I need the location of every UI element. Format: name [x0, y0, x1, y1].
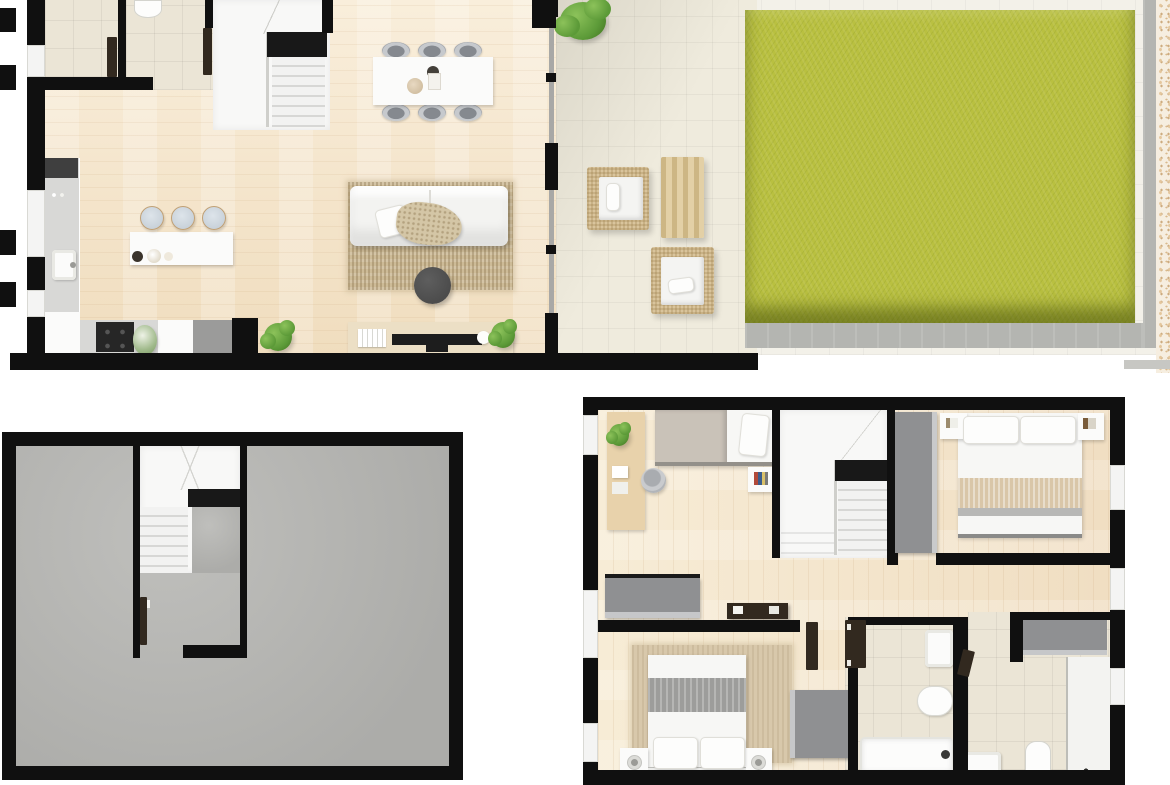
bar-stool-1 [140, 206, 164, 230]
first-right-window-3 [1110, 668, 1125, 705]
glass-wall-seg-mid [545, 143, 558, 190]
first-stair-wall-left [772, 410, 780, 558]
tv [392, 334, 482, 345]
dining-top-wall-stub [532, 0, 556, 28]
bathroom1-door-handle [847, 624, 851, 630]
first-stair-wall-right [887, 410, 895, 565]
wc-right-wall [205, 0, 213, 28]
bedroom1-bed-blanket [655, 410, 727, 466]
first-stair-treads [838, 481, 887, 555]
sideboard-books [358, 329, 386, 347]
garden-shadow-line [1124, 360, 1170, 369]
dining-chair-6 [454, 104, 482, 121]
bedroom1-desk-papers [612, 466, 628, 478]
master-wardrobe [790, 690, 852, 758]
stair-top-wall-stub [322, 0, 333, 33]
first-left-window-1 [583, 415, 598, 455]
bathroom2-wardrobe [1023, 620, 1107, 655]
bathtub-faucet [941, 750, 950, 759]
basement-stair-wall-left [133, 446, 140, 658]
bedroom2-bottom-wall-left [888, 553, 898, 565]
counter-bottles [50, 190, 66, 200]
bedroom1-desk-chair [641, 468, 666, 493]
terrazzo-strip [1156, 0, 1170, 373]
glass-mullion-1 [546, 73, 556, 82]
first-winder-line [835, 410, 887, 460]
master-pillow-right [700, 737, 745, 769]
bathroom1-bathtub [860, 737, 954, 774]
bar-stool-3 [202, 206, 226, 230]
kitchen-fridge [45, 312, 80, 357]
kitchen-island [130, 232, 233, 265]
bedroom1-bed-pillow [738, 413, 770, 458]
glass-wall-seg-bottom [545, 313, 558, 355]
first-left-window-3 [583, 723, 598, 762]
hall-console-items [733, 606, 743, 614]
bathroom2-wall-stub [1010, 612, 1023, 662]
bedroom1-nightstand-book [754, 472, 768, 485]
entry-wc-divider-wall [118, 0, 126, 90]
bar-stool-2 [171, 206, 195, 230]
bedroom2-pillow-left [963, 416, 1019, 444]
bedroom2-pillow-right [1020, 416, 1076, 444]
bedroom2-bottom-wall-right [936, 553, 1110, 565]
stair-treads [272, 57, 325, 127]
shower-area [1068, 657, 1110, 770]
kitchen-faucet [70, 262, 76, 268]
bathroom1-toilet [917, 686, 953, 716]
left-wall-seg2 [27, 77, 45, 190]
tv-stand [426, 345, 448, 352]
terrace-shrub [560, 2, 606, 40]
kitchen-cabinet-white [158, 320, 193, 353]
bedroom2-bed-footline [958, 534, 1082, 538]
glass-mullion-2 [546, 245, 556, 254]
stone-border-bottom [745, 323, 1158, 348]
kitchen-cabinet-gray [193, 320, 232, 353]
basement-stair-void [192, 507, 240, 573]
bathroom1-left-wall [848, 666, 858, 770]
kitchen-shelf [45, 158, 78, 178]
basement-door-handle [147, 600, 150, 608]
first-stair-treads-lower [781, 524, 835, 558]
stone-border-right [1143, 0, 1156, 348]
left-wall-seg1 [27, 0, 45, 45]
first-stair-edge [835, 460, 887, 481]
table-bowl-beige [407, 78, 423, 94]
bedroom1-desk-plant [609, 424, 629, 446]
left-window-3 [27, 290, 45, 317]
island-bowl [132, 251, 143, 262]
sideboard-plant [491, 322, 515, 348]
shower-glass [1066, 657, 1068, 770]
basement-door [140, 597, 147, 645]
master-pillow-left [653, 737, 698, 769]
floor-plan-sheet [0, 0, 1170, 785]
exterior-wall-nub-2 [0, 65, 16, 90]
bathrooms-divider-wall [953, 617, 968, 770]
counter-flower-plant [133, 325, 157, 355]
stair-winder-line [216, 0, 327, 34]
coffee-table [414, 267, 451, 304]
bathroom1-washbasin [925, 630, 953, 667]
bathroom2-top-wall [1010, 612, 1110, 620]
exterior-wall-nub-3 [0, 230, 16, 255]
first-left-window-2 [583, 590, 598, 658]
rattan-side-table [661, 157, 704, 238]
basement-stair-edge [188, 489, 240, 507]
entry-bottom-wall [27, 77, 153, 90]
lawn [745, 10, 1135, 323]
dining-chair-5 [418, 104, 446, 121]
first-bottom-wall [583, 770, 1125, 785]
exterior-wall-nub-1 [0, 8, 16, 32]
basement-stair-treads [140, 507, 188, 573]
island-cup [164, 252, 173, 261]
bedroom2-nightstand-left-deco [946, 418, 958, 428]
master-top-wall [598, 620, 800, 632]
bathroom1-top-wall [848, 617, 968, 625]
left-window-1 [27, 45, 45, 77]
left-wall-seg3 [27, 257, 45, 290]
bedroom2-bed-runner [958, 478, 1082, 508]
table-tray [428, 73, 441, 90]
hall-wardrobe [605, 578, 700, 618]
left-window-2 [27, 190, 45, 257]
first-right-window-2 [1110, 568, 1125, 610]
first-right-window-1 [1110, 465, 1125, 510]
bedroom1-bed-footline [655, 462, 775, 466]
ground-bottom-wall [10, 353, 758, 370]
master-nightstand-right-lamp [751, 755, 766, 770]
wc-door [203, 28, 212, 75]
exterior-wall-nub-4 [0, 282, 16, 307]
armchair-1-pillow [606, 183, 620, 211]
left-wall-seg4 [27, 317, 45, 357]
stair-landing-edge [267, 32, 327, 57]
master-bed-runner [648, 678, 746, 712]
floor-plant-kitchen [264, 323, 292, 351]
first-top-wall [583, 397, 1125, 410]
entry-door [107, 37, 117, 77]
cooktop [96, 322, 134, 352]
dining-chair-4 [382, 104, 410, 121]
wc-toilet [134, 0, 162, 18]
master-nightstand-left-lamp [627, 755, 642, 770]
kitchen-wall-stub [232, 318, 258, 355]
basement-winder-line-2 [140, 446, 240, 490]
island-plate [147, 249, 161, 263]
basement-stair-wall-right [240, 446, 247, 658]
basement-stair-wall-bottom [183, 645, 247, 658]
bedroom2-bed-grayline [958, 508, 1082, 516]
bedroom2-wardrobe [895, 412, 937, 553]
bedroom2-nightstand-right-deco [1083, 418, 1096, 429]
master-door [806, 622, 818, 670]
